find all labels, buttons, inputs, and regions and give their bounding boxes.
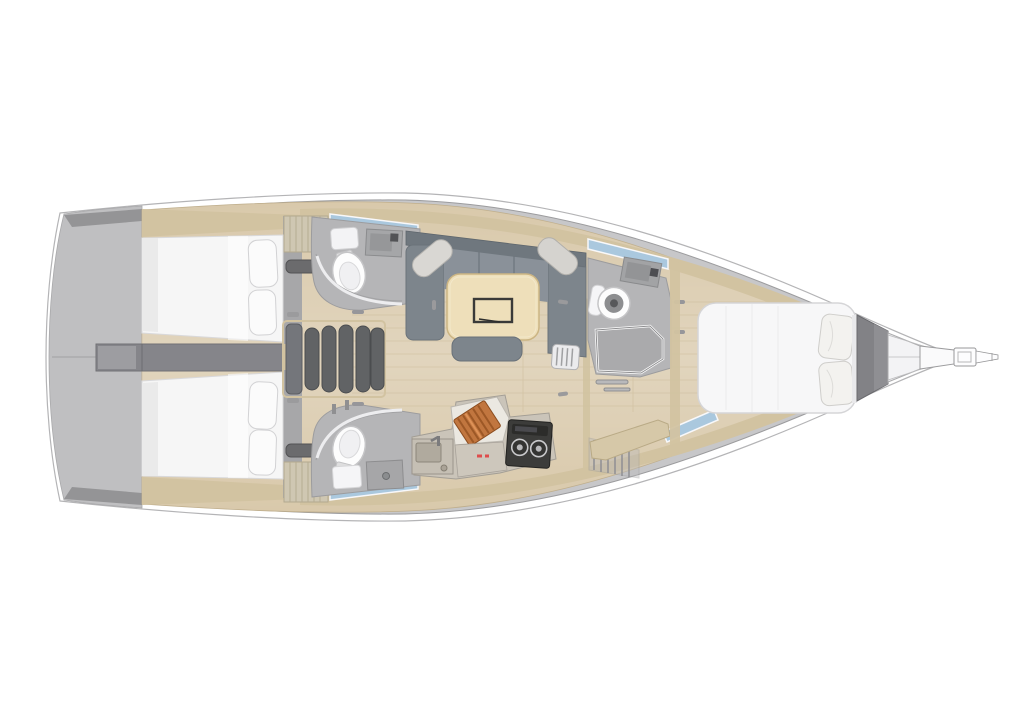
head-floor — [311, 217, 420, 310]
pillow — [248, 239, 278, 287]
galley-sink — [412, 436, 453, 474]
engine-corridor — [96, 338, 302, 377]
bowsprit-tip — [976, 351, 998, 363]
berth-head-edge — [852, 315, 857, 403]
fwd-bulkhead — [670, 260, 680, 455]
grab-handle — [287, 312, 299, 317]
sofa-arm-right — [548, 263, 586, 357]
steps — [305, 325, 384, 393]
boat-floor-plan — [0, 0, 1024, 724]
shower-mat — [332, 465, 361, 489]
berth-runner — [228, 236, 248, 341]
pillow — [248, 430, 277, 476]
anchor-locker-panel — [874, 324, 888, 391]
pillow — [248, 290, 277, 336]
salon-bench — [452, 337, 522, 361]
door-handle — [352, 402, 364, 406]
bow — [857, 315, 998, 401]
corridor-panel — [98, 346, 136, 369]
shower-pan — [366, 460, 403, 490]
sink-knob — [441, 465, 447, 471]
grab-handle — [287, 398, 299, 403]
boat-floor-plan-canvas — [0, 0, 1024, 724]
faucet — [345, 400, 349, 410]
pillow — [818, 361, 855, 407]
head-port-aft — [311, 217, 420, 314]
berth-runner — [228, 373, 248, 478]
pillow — [817, 313, 855, 361]
stove — [505, 420, 552, 469]
grab-rail — [604, 388, 630, 391]
folding-stool — [551, 344, 580, 370]
shower-drain — [382, 472, 389, 479]
grab-rail — [596, 380, 628, 384]
faucet — [650, 268, 659, 277]
berth-foot-shade — [142, 238, 158, 332]
faucet — [332, 404, 336, 414]
door-handle — [352, 310, 364, 314]
pillow — [248, 381, 278, 429]
aft-cabin-starboard — [142, 370, 302, 505]
stairs-landing — [286, 324, 302, 394]
cistern — [330, 227, 358, 250]
salon-table — [447, 274, 539, 340]
sink — [365, 229, 402, 257]
berth-foot-shade — [142, 382, 158, 476]
aft-cabin-port — [142, 209, 302, 344]
bowsprit — [954, 348, 976, 366]
faucet — [390, 233, 398, 241]
head-starboard-aft — [311, 400, 420, 497]
bow-taper — [920, 346, 954, 369]
